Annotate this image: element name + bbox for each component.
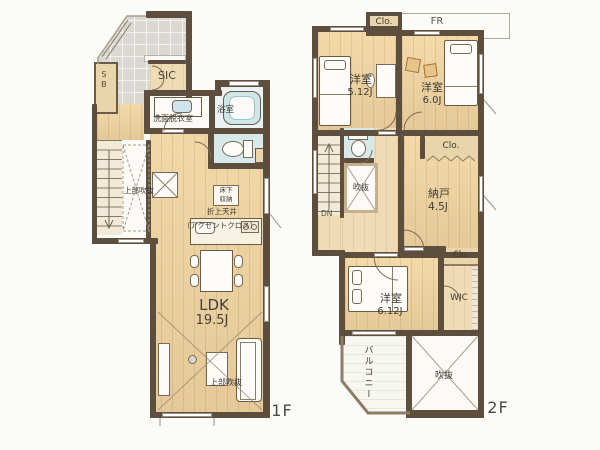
wall bbox=[420, 136, 425, 159]
storage-size-label: 4.5J bbox=[428, 202, 448, 213]
toilet-tank-1f bbox=[243, 140, 253, 158]
stairs-2f bbox=[318, 135, 340, 215]
window bbox=[264, 178, 269, 214]
window bbox=[118, 239, 144, 243]
bedroom1-name-label: 洋室 bbox=[350, 74, 372, 86]
wall bbox=[215, 80, 221, 96]
wall bbox=[208, 128, 214, 168]
floor-1f-label: 1F bbox=[271, 403, 292, 420]
blanket-line bbox=[445, 86, 477, 87]
wall bbox=[340, 128, 344, 218]
void-large-label: 吹抜 bbox=[435, 372, 453, 381]
washroom-label: 洗面脱衣室 bbox=[153, 115, 193, 123]
wall bbox=[398, 136, 404, 252]
pillow bbox=[450, 44, 472, 54]
floor-storage-label2: 収納 bbox=[220, 196, 233, 203]
bedroom1-size-label: 5.12J bbox=[347, 88, 372, 99]
door-opening bbox=[404, 247, 424, 251]
wic-label: WIC bbox=[450, 294, 468, 303]
wall bbox=[92, 104, 97, 244]
wall bbox=[186, 11, 192, 98]
dining-chair bbox=[234, 255, 243, 268]
wall bbox=[396, 26, 402, 136]
balcony-floor bbox=[342, 336, 408, 414]
wall bbox=[344, 158, 374, 163]
ceiling-note-label1: 折上天井 bbox=[207, 208, 237, 216]
plant bbox=[188, 355, 197, 364]
window bbox=[330, 27, 364, 31]
desk-bedroom1 bbox=[376, 64, 396, 98]
wash-basin-bowl bbox=[172, 100, 192, 113]
closet-bottom-label: Clo. bbox=[453, 251, 469, 260]
pillow bbox=[324, 60, 346, 70]
bedroom3-size-label: 6.12J bbox=[377, 307, 402, 318]
wall bbox=[406, 410, 484, 418]
bedroom2-size-label: 6.0J bbox=[423, 96, 442, 107]
closet-top-label: Clo. bbox=[376, 18, 393, 27]
pantry-box bbox=[152, 172, 178, 198]
toilet-bowl-1f bbox=[222, 141, 244, 157]
balcony-label: バルコニー bbox=[362, 345, 371, 400]
floor-cushion bbox=[405, 57, 421, 73]
wall bbox=[148, 60, 186, 64]
window bbox=[162, 413, 212, 417]
window bbox=[352, 331, 396, 335]
window bbox=[229, 81, 259, 86]
sic-label: SIC bbox=[158, 70, 176, 82]
pillow bbox=[352, 289, 362, 304]
wall bbox=[398, 30, 484, 36]
wall bbox=[406, 336, 412, 418]
ldk-name-label: LDK bbox=[199, 298, 229, 314]
floor-2f-label: 2F bbox=[487, 400, 508, 417]
stair-landing-2f bbox=[318, 215, 342, 252]
upper-void-living-label: 上部吹抜 bbox=[210, 379, 242, 387]
window bbox=[479, 176, 483, 212]
bedroom3-name-label: 洋室 bbox=[380, 293, 402, 305]
fr-label: FR bbox=[431, 17, 444, 28]
bedroom2-name-label: 洋室 bbox=[421, 82, 443, 94]
wall bbox=[402, 130, 484, 136]
stairs-1f bbox=[95, 140, 122, 235]
dining-chair bbox=[190, 255, 199, 268]
ceiling-note-label2: （アクセントクロス） bbox=[183, 222, 258, 230]
toilet-bowl-2f bbox=[351, 140, 366, 157]
shoe-box-label: SB bbox=[99, 70, 107, 90]
tv-board bbox=[158, 343, 170, 396]
door-opening bbox=[162, 129, 184, 133]
wall bbox=[150, 238, 156, 418]
plan-annotations bbox=[0, 0, 600, 450]
closet-mid-label: Clo. bbox=[443, 142, 460, 151]
window bbox=[264, 286, 269, 322]
wall bbox=[263, 80, 270, 418]
dn-label: DN bbox=[321, 210, 332, 218]
floor-storage-label1: 床下 bbox=[220, 187, 233, 194]
door-opening bbox=[374, 253, 398, 257]
window bbox=[313, 150, 317, 194]
blanket-line bbox=[320, 94, 350, 95]
window bbox=[414, 31, 440, 35]
dining-chair bbox=[234, 274, 243, 287]
closet-divider bbox=[444, 264, 478, 266]
bath-label: 浴室 bbox=[217, 106, 234, 115]
door-opening bbox=[378, 131, 396, 135]
dining-table bbox=[200, 250, 233, 292]
window bbox=[313, 58, 317, 98]
pillow bbox=[352, 270, 362, 285]
void-small-label: 吹抜 bbox=[353, 184, 369, 192]
wall bbox=[208, 163, 270, 169]
upper-void-stairs-label: 上部吹抜 bbox=[124, 187, 154, 195]
sofa-seat-line bbox=[240, 342, 256, 400]
ldk-size-label: 19.5J bbox=[196, 314, 229, 328]
floor-plan: SB SIC 洗面脱衣室 浴室 上部吹抜 床下 収納 折上天井 （アクセントクロ… bbox=[0, 0, 600, 450]
dining-chair bbox=[190, 274, 199, 287]
window bbox=[479, 54, 483, 94]
storage-name-label: 納戸 bbox=[428, 188, 450, 200]
floor-cushion bbox=[423, 63, 438, 78]
